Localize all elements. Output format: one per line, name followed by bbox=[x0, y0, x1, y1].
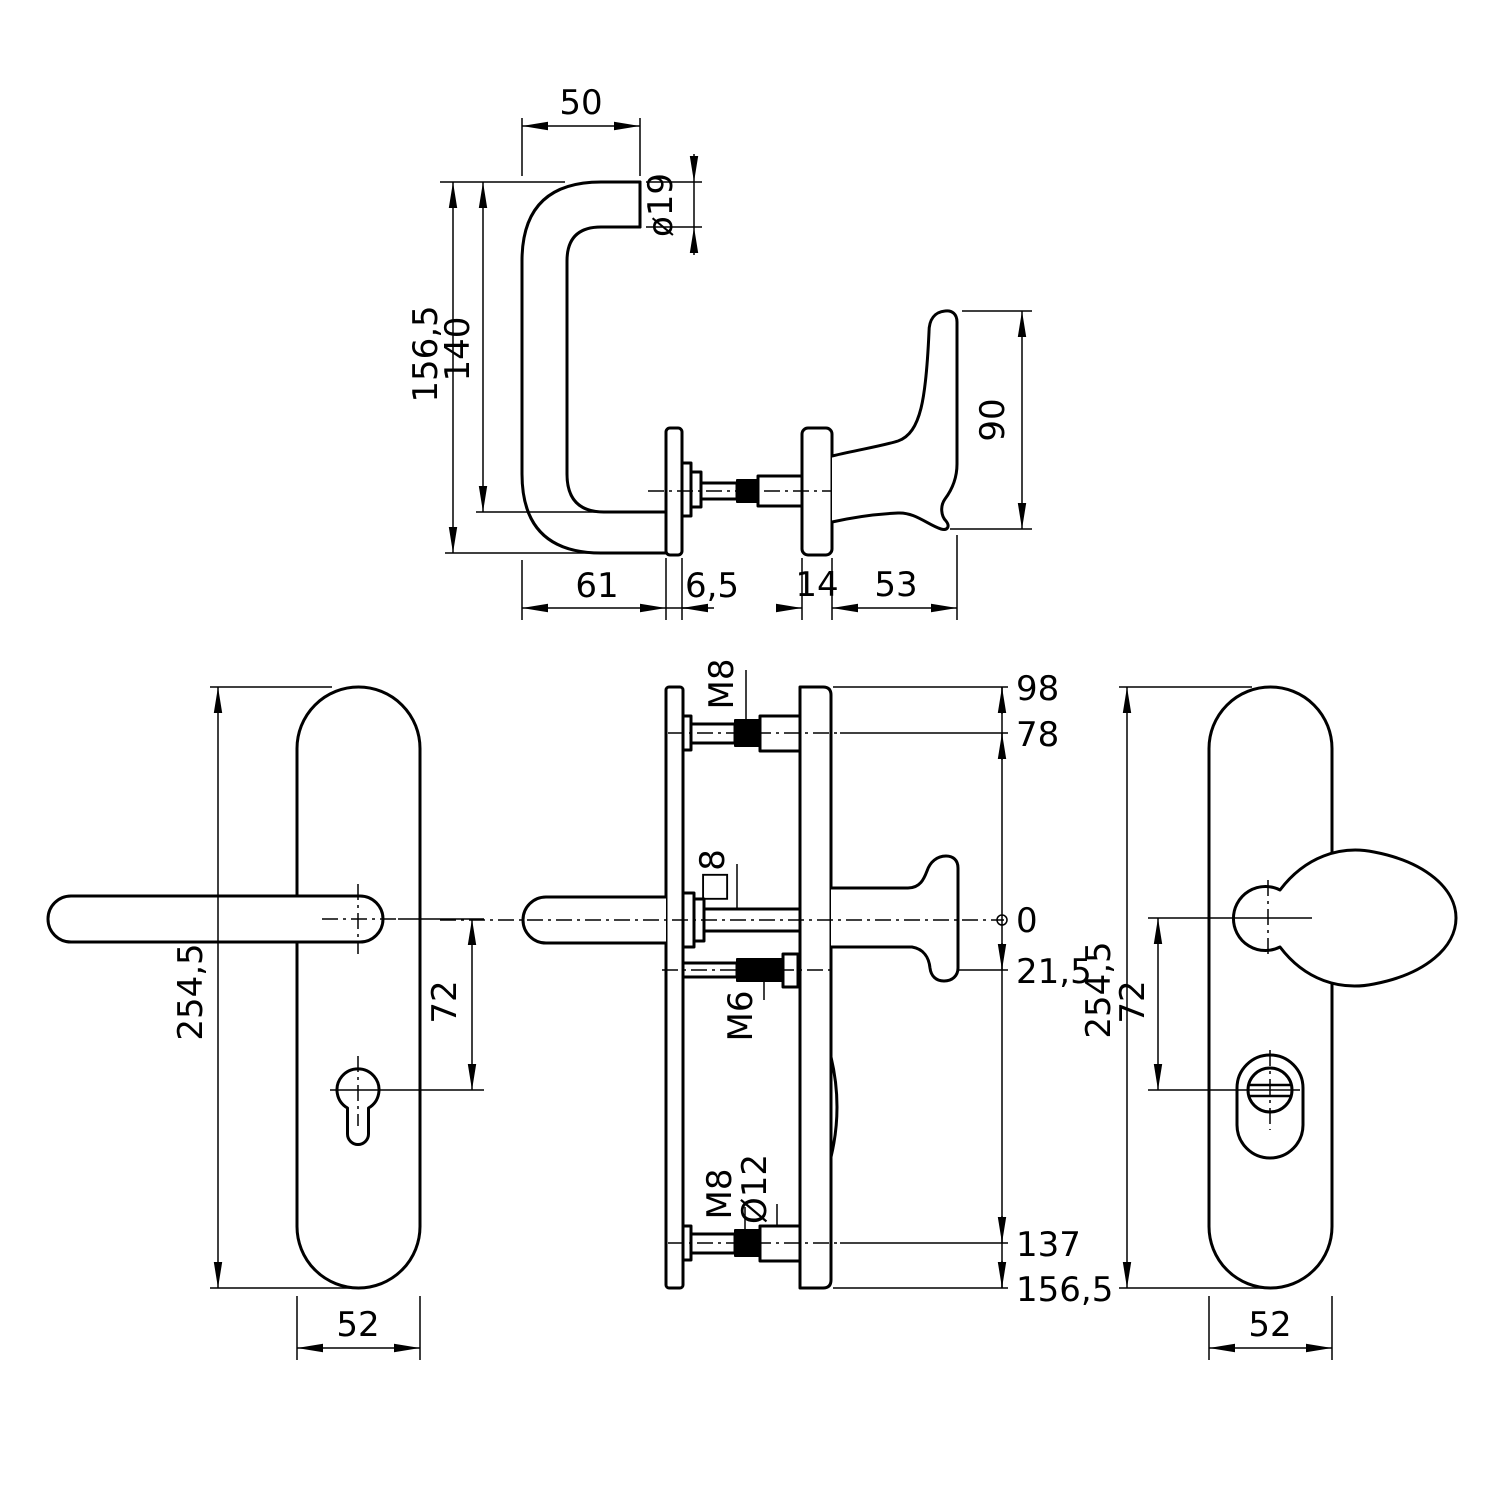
view-inside-plate: 254,5 72 52 bbox=[1079, 687, 1456, 1360]
view-outside-plate: 254,5 72 52 bbox=[48, 687, 484, 1360]
label-grub-screw: M6 bbox=[721, 991, 761, 1042]
label-bottom-bolt: M8 bbox=[700, 1169, 740, 1220]
ordinate-78: 78 bbox=[1016, 715, 1059, 755]
ordinate-156-5: 156,5 bbox=[1016, 1270, 1113, 1310]
dim-rose-thickness: 6,5 bbox=[685, 566, 739, 606]
label-sleeve-diameter: Ø12 bbox=[735, 1154, 775, 1224]
dim-inner-height: 140 bbox=[438, 317, 478, 382]
dim-plate-width: 52 bbox=[1248, 1305, 1291, 1345]
ordinate-137: 137 bbox=[1016, 1225, 1081, 1265]
knob-section bbox=[831, 856, 958, 981]
dim-tube-diameter: ø19 bbox=[641, 173, 681, 237]
technical-drawing-page: 50 ø19 156,5 140 90 61 6,5 bbox=[0, 0, 1500, 1500]
ordinate-98: 98 bbox=[1016, 669, 1059, 709]
label-square-spindle: □8 bbox=[693, 849, 733, 903]
dim-knob-height: 90 bbox=[973, 398, 1013, 441]
outside-backplate-outline bbox=[297, 687, 420, 1288]
dim-top-width: 50 bbox=[559, 83, 602, 123]
dim-plate-width: 52 bbox=[336, 1305, 379, 1345]
inside-plate-section bbox=[800, 687, 831, 1288]
dim-handle-to-cylinder: 72 bbox=[1113, 980, 1153, 1023]
dim-lever-projection: 61 bbox=[575, 566, 618, 606]
dim-plate-height: 254,5 bbox=[171, 943, 211, 1040]
view-lever-side: 50 ø19 156,5 140 90 61 6,5 bbox=[406, 83, 1032, 620]
inside-backplate-outline bbox=[1209, 687, 1332, 1288]
dim-knob-projection: 53 bbox=[874, 565, 917, 605]
label-top-bolt: M8 bbox=[702, 659, 742, 710]
outside-plate-section bbox=[666, 687, 683, 1288]
dim-handle-to-cylinder: 72 bbox=[425, 980, 465, 1023]
dim-inner-rose-thickness: 14 bbox=[795, 565, 838, 605]
view-section: M8 □8 M6 M8 Ø12 bbox=[440, 659, 1113, 1310]
door-handle-dimension-drawing: 50 ø19 156,5 140 90 61 6,5 bbox=[0, 0, 1500, 1500]
knob-lever-outline bbox=[832, 311, 957, 530]
lever-handle-inner-contour bbox=[567, 227, 666, 512]
ordinate-0: 0 bbox=[1016, 901, 1038, 941]
